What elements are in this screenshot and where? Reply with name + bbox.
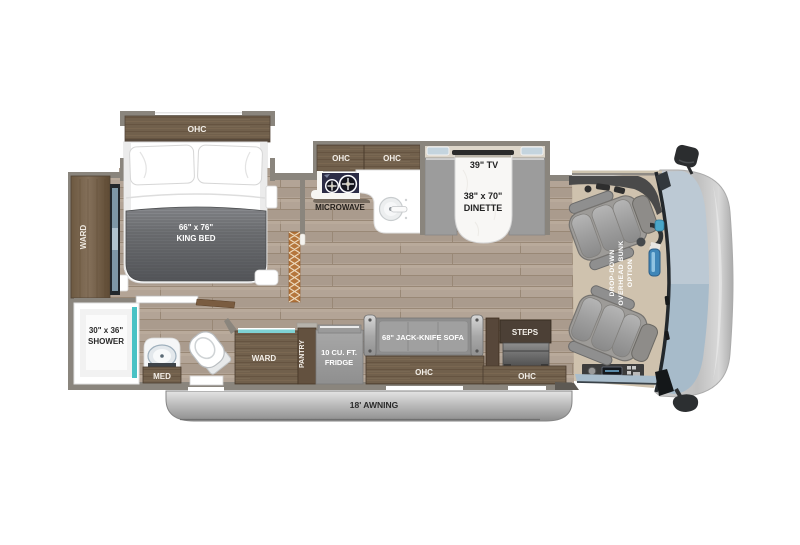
svg-text:DROP-DOWN: DROP-DOWN: [609, 249, 616, 296]
svg-text:WARD: WARD: [79, 225, 88, 250]
svg-text:OVERHEAD BUNK: OVERHEAD BUNK: [618, 240, 625, 305]
svg-text:OHC: OHC: [383, 154, 401, 163]
svg-text:OHC: OHC: [518, 372, 536, 381]
svg-text:10 CU. FT.: 10 CU. FT.: [321, 348, 357, 357]
svg-text:MED: MED: [153, 372, 171, 381]
svg-text:PANTRY: PANTRY: [299, 340, 306, 368]
svg-text:18' AWNING: 18' AWNING: [350, 400, 399, 410]
svg-text:30" x 36": 30" x 36": [89, 326, 123, 335]
svg-text:38" x 70": 38" x 70": [464, 191, 503, 201]
svg-text:SHOWER: SHOWER: [88, 337, 124, 346]
svg-text:66" x 76": 66" x 76": [179, 223, 213, 232]
svg-text:OHC: OHC: [332, 154, 350, 163]
svg-text:KING BED: KING BED: [176, 234, 215, 243]
svg-text:OHC: OHC: [188, 124, 207, 134]
svg-text:STEPS: STEPS: [512, 328, 539, 337]
svg-text:WARD: WARD: [252, 354, 277, 363]
svg-text:39" TV: 39" TV: [470, 160, 498, 170]
svg-text:FRIDGE: FRIDGE: [325, 358, 353, 367]
svg-text:DINETTE: DINETTE: [464, 203, 503, 213]
svg-text:OHC: OHC: [415, 368, 433, 377]
svg-text:MICROWAVE: MICROWAVE: [315, 203, 365, 212]
svg-text:OPTION: OPTION: [627, 259, 634, 287]
svg-text:68" JACK-KNIFE SOFA: 68" JACK-KNIFE SOFA: [382, 333, 464, 342]
